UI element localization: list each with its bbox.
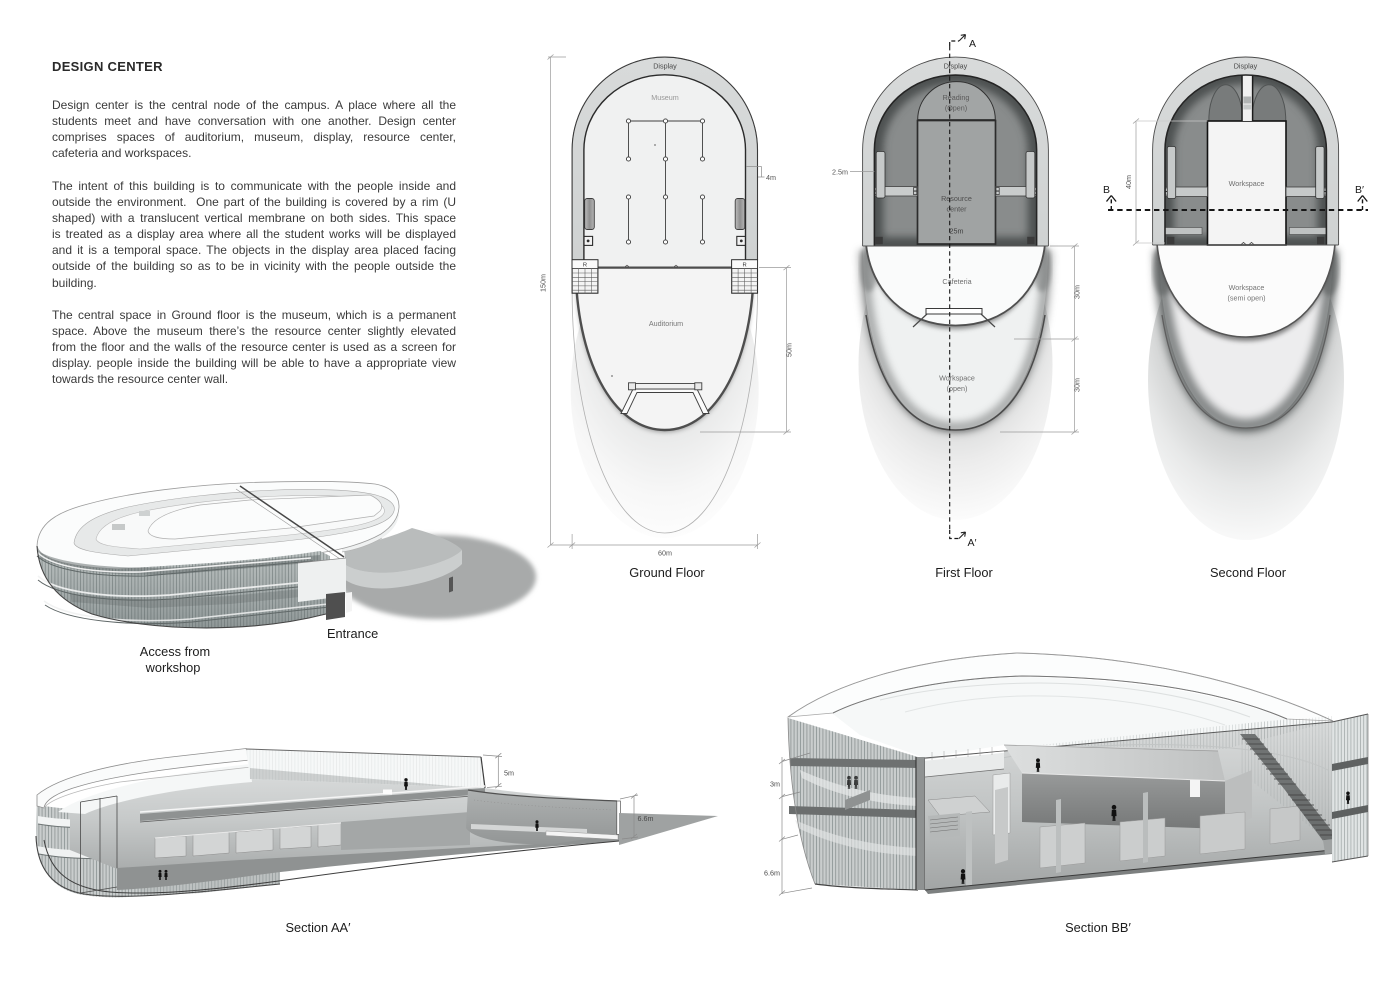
svg-text:Museum: Museum <box>651 93 679 102</box>
svg-text:30m: 30m <box>1073 285 1082 299</box>
svg-text:150m: 150m <box>539 274 548 292</box>
svg-text:Resource: Resource <box>941 194 972 203</box>
svg-text:Section AA′: Section AA′ <box>285 920 351 935</box>
svg-text:60m: 60m <box>658 549 672 558</box>
svg-text:Section BB′: Section BB′ <box>1065 920 1131 935</box>
svg-text:First Floor: First Floor <box>935 565 993 580</box>
svg-text:4m: 4m <box>766 173 776 182</box>
svg-text:Display: Display <box>1234 62 1258 71</box>
svg-text:R: R <box>743 263 747 269</box>
svg-text:25m: 25m <box>950 227 964 236</box>
svg-text:workshop: workshop <box>145 660 201 675</box>
svg-text:Access from: Access from <box>140 644 210 659</box>
svg-text:6.6m: 6.6m <box>764 869 780 878</box>
svg-text:A′: A′ <box>968 537 977 549</box>
svg-text:Reading: Reading <box>943 93 970 102</box>
svg-text:Auditorium: Auditorium <box>649 319 683 328</box>
svg-text:B′: B′ <box>1355 184 1364 196</box>
svg-text:Workspace: Workspace <box>939 374 975 383</box>
svg-text:B: B <box>1103 184 1110 196</box>
svg-text:50m: 50m <box>785 343 794 357</box>
svg-text:Cafeteria: Cafeteria <box>942 277 971 286</box>
svg-text:2.5m: 2.5m <box>832 168 848 177</box>
svg-text:6.6m: 6.6m <box>638 814 654 823</box>
svg-text:5m: 5m <box>504 769 514 778</box>
svg-text:Workspace: Workspace <box>1229 283 1265 292</box>
svg-text:Entrance: Entrance <box>327 626 378 641</box>
svg-text:3m: 3m <box>770 780 780 789</box>
svg-text:Second Floor: Second Floor <box>1210 565 1287 580</box>
svg-text:A: A <box>969 38 976 50</box>
svg-text:Ground Floor: Ground Floor <box>629 565 705 580</box>
svg-text:(Open): (Open) <box>945 104 967 113</box>
svg-text:30m: 30m <box>1073 378 1082 392</box>
svg-text:Display: Display <box>944 62 968 71</box>
svg-text:Display: Display <box>653 62 677 71</box>
svg-text:Workspace: Workspace <box>1229 179 1265 188</box>
svg-text:R: R <box>583 263 587 269</box>
svg-text:(semi open): (semi open) <box>1228 294 1266 303</box>
svg-text:40m: 40m <box>1124 175 1133 189</box>
